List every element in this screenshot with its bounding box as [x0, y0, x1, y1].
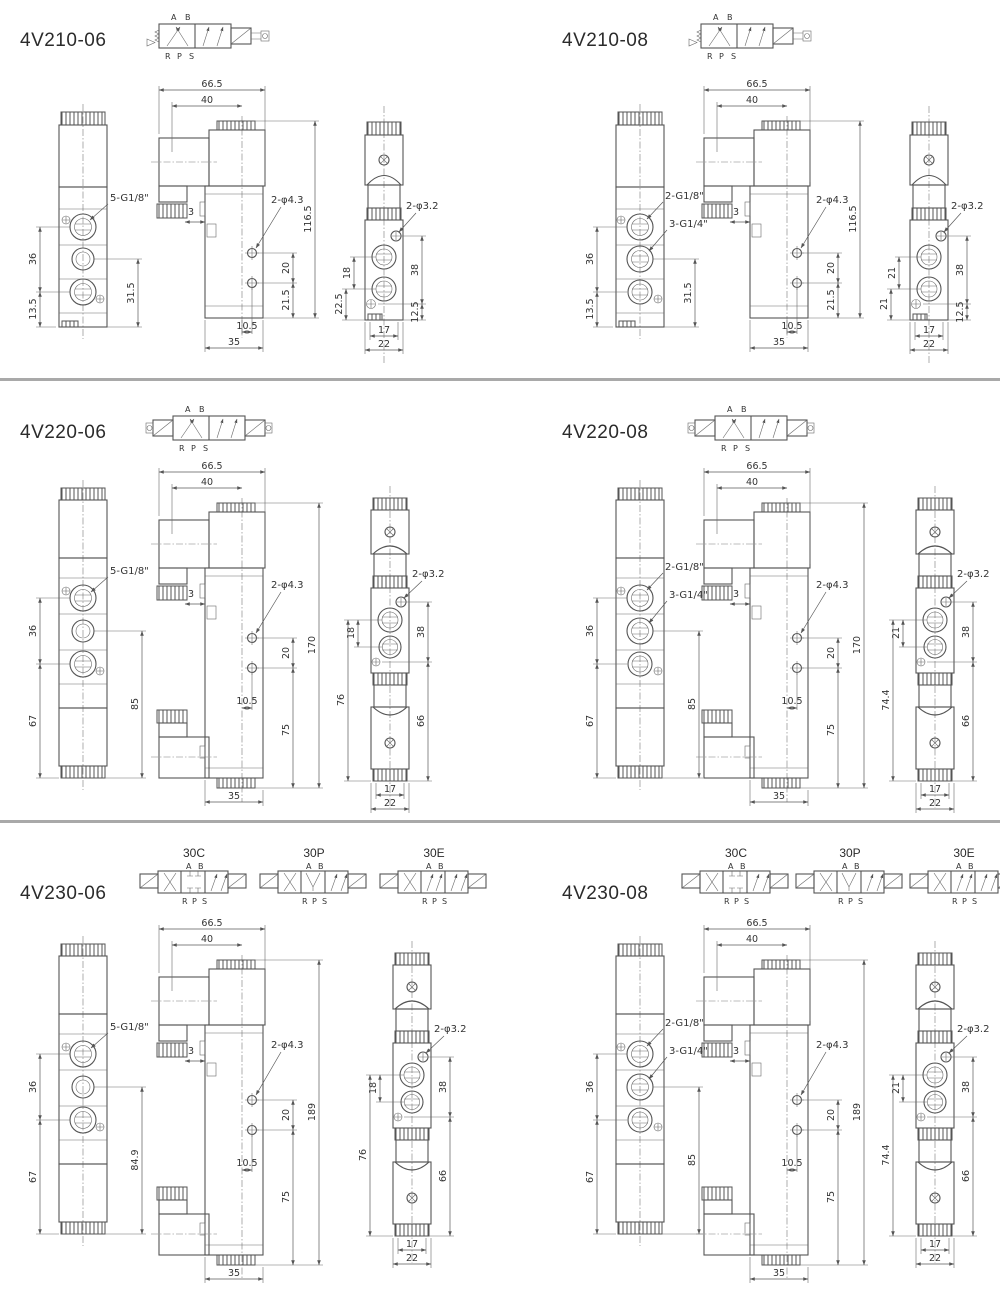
rear-view: 2-φ3.2 21 74.4 38 66 17 22 — [873, 933, 1000, 1273]
section-4v230-08: 4V230-08 30C A B R P S 30P A B R P S — [552, 835, 1000, 1300]
valve-outline — [696, 955, 810, 1279]
valve-outline — [59, 480, 107, 790]
port-s-label: S — [972, 897, 977, 906]
port-r-label: R — [707, 52, 713, 61]
hole-size-label: 2-φ4.3 — [271, 195, 303, 206]
port-p-label: P — [312, 897, 317, 906]
dim-38: 38 — [961, 1081, 972, 1093]
port-s-label: S — [202, 897, 207, 906]
model-title: 4V220-06 — [20, 422, 106, 444]
dim-67: 67 — [585, 715, 596, 727]
dim-170: 170 — [307, 636, 318, 654]
model-title: 4V210-06 — [20, 30, 106, 52]
port-a-label: A — [728, 862, 734, 871]
dim-35: 35 — [228, 1268, 240, 1279]
dim-40: 40 — [746, 934, 758, 945]
port-b-label: B — [318, 862, 324, 871]
catalog-drawing-page: 4V210-06 A B R P S — [0, 0, 1000, 1304]
dim-17: 17 — [929, 784, 941, 795]
variant-label: 30P — [303, 846, 324, 860]
valve-symbol: A B R P S — [145, 402, 285, 456]
hole-size-label: 2-φ4.3 — [816, 1040, 848, 1051]
hole-size-label: 2-φ4.3 — [816, 195, 848, 206]
dimensions: 5-G1/8" 36 67 84.9 — [28, 1022, 149, 1234]
dim-22-5: 22.5 — [334, 293, 345, 314]
dimensions: 66.5 40 3 2-φ4.3 189 20 75 10.5 35 — [704, 918, 868, 1283]
dim-10-5: 10.5 — [236, 321, 257, 332]
row-divider-2 — [0, 820, 1000, 823]
valve-symbol-30c: 30C A B R P S — [138, 847, 250, 907]
side-view: 66.5 40 3 2-φ4.3 189 20 75 10.5 35 — [690, 915, 880, 1293]
dim-35: 35 — [773, 791, 785, 802]
port-r-label: R — [952, 897, 958, 906]
dim-38: 38 — [410, 264, 421, 276]
dim-35: 35 — [773, 1268, 785, 1279]
thread-size-label: 5-G1/8" — [110, 566, 149, 577]
dim-21-5: 21.5 — [281, 289, 292, 310]
dim-17: 17 — [923, 325, 935, 336]
dim-36: 36 — [28, 253, 39, 265]
valve-outline — [151, 498, 265, 802]
dim-36: 36 — [585, 253, 596, 265]
dim-66: 66 — [416, 715, 427, 727]
port-b-label: B — [185, 13, 191, 22]
valve-symbol-30c: 30C A B R P S — [680, 847, 792, 907]
dim-40: 40 — [746, 95, 758, 106]
dim-20: 20 — [826, 262, 837, 274]
dimensions: 66.5 40 3 2-φ4.3 170 20 75 10.5 35 — [704, 461, 868, 806]
dim-20: 20 — [281, 647, 292, 659]
port-p-label: P — [962, 897, 967, 906]
port-s-label: S — [858, 897, 863, 906]
dim-17: 17 — [929, 1239, 941, 1250]
valve-outline — [151, 955, 265, 1279]
symbol-body — [380, 871, 486, 893]
section-4v230-06: 4V230-06 30C A B R P S 30P A B R P — [10, 835, 500, 1300]
dim-38: 38 — [438, 1081, 449, 1093]
port-a-label: A — [713, 13, 719, 22]
section-4v220-06: 4V220-06 A B R P S — [10, 392, 490, 820]
row-divider-1 — [0, 378, 1000, 381]
dim-76: 76 — [358, 1149, 369, 1161]
dim-38: 38 — [955, 264, 966, 276]
port-r-label: R — [165, 52, 171, 61]
dim-18: 18 — [368, 1082, 379, 1094]
rear-view: 2-φ3.2 18 22.5 38 12.5 17 22 — [322, 96, 457, 376]
dim-66: 66 — [961, 715, 972, 727]
hole-size-label: 2-φ3.2 — [406, 201, 438, 212]
port-s-label: S — [744, 897, 749, 906]
port-p-label: P — [177, 52, 182, 61]
dim-3: 3 — [188, 207, 194, 218]
rear-view: 2-φ3.2 18 76 38 66 17 22 — [328, 478, 463, 818]
port-a-label: A — [186, 862, 192, 871]
dim-38: 38 — [416, 626, 427, 638]
thread-size-label: 5-G1/8" — [110, 1022, 149, 1033]
dim-75: 75 — [826, 724, 837, 736]
hole-size-label: 2-φ3.2 — [951, 201, 983, 212]
dimensions: 5-G1/8" 36 67 85 — [28, 566, 149, 778]
dimensions: 66.5 40 3 2-φ4.3 170 20 75 10.5 35 — [159, 461, 323, 806]
dim-13-5: 13.5 — [585, 298, 596, 319]
port-a-label: A — [956, 862, 962, 871]
side-view: 66.5 40 3 2-φ4.3 116.5 20 21.5 10.5 35 — [145, 76, 335, 371]
dim-20: 20 — [826, 1109, 837, 1121]
port-b-label: B — [741, 405, 747, 414]
port-p-label: P — [192, 897, 197, 906]
port-s-label: S — [442, 897, 447, 906]
dim-116-5: 116.5 — [303, 205, 314, 232]
port-a-label: A — [426, 862, 432, 871]
valve-outline — [151, 116, 265, 338]
dim-66-5: 66.5 — [201, 918, 222, 929]
dim-66: 66 — [961, 1170, 972, 1182]
dim-22: 22 — [929, 798, 941, 809]
model-title: 4V210-08 — [562, 30, 648, 52]
port-a-label: A — [306, 862, 312, 871]
rear-view: 2-φ3.2 18 76 38 66 17 22 — [350, 933, 485, 1273]
side-view: 66.5 40 3 2-φ4.3 189 20 75 10.5 35 — [145, 915, 335, 1293]
dim-40: 40 — [201, 95, 213, 106]
port-p-label: P — [733, 444, 738, 453]
variant-label: 30P — [839, 846, 860, 860]
dim-84-9: 84.9 — [130, 1149, 141, 1170]
valve-symbol: A B R P S — [687, 402, 827, 456]
hole-size-label: 2-φ4.3 — [271, 580, 303, 591]
dim-18: 18 — [342, 267, 353, 279]
dim-35: 35 — [773, 337, 785, 348]
port-s-label: S — [322, 897, 327, 906]
port-r-label: R — [721, 444, 727, 453]
port-b-label: B — [438, 862, 444, 871]
port-p-label: P — [432, 897, 437, 906]
dim-21-5: 21.5 — [826, 289, 837, 310]
port-p-label: P — [191, 444, 196, 453]
port-r-label: R — [302, 897, 308, 906]
dim-31-5: 31.5 — [126, 282, 137, 303]
dim-18: 18 — [346, 627, 357, 639]
dim-17: 17 — [406, 1239, 418, 1250]
valve-symbol-30e: 30E A B R P S — [908, 847, 1000, 907]
port-b-label: B — [198, 862, 204, 871]
valve-outline — [616, 104, 664, 339]
dim-10-5: 10.5 — [781, 321, 802, 332]
dim-66-5: 66.5 — [746, 918, 767, 929]
port-a-label: A — [171, 13, 177, 22]
dim-35: 35 — [228, 791, 240, 802]
dim-66-5: 66.5 — [746, 79, 767, 90]
dim-85: 85 — [130, 698, 141, 710]
section-4v210-06: 4V210-06 A B R P S — [10, 8, 490, 373]
port-r-label: R — [422, 897, 428, 906]
port-r-label: R — [838, 897, 844, 906]
dim-10-5: 10.5 — [236, 1158, 257, 1169]
hole-size-label: 2-φ4.3 — [816, 580, 848, 591]
symbol-body — [796, 871, 902, 893]
symbol-body — [910, 871, 1000, 893]
valve-outline — [59, 104, 107, 339]
port-s-label: S — [189, 52, 194, 61]
dim-3: 3 — [733, 207, 739, 218]
dimensions: 66.5 40 3 2-φ4.3 189 20 75 10.5 35 — [159, 918, 323, 1283]
side-view: 66.5 40 3 2-φ4.3 116.5 20 21.5 10.5 35 — [690, 76, 880, 371]
hole-size-label: 2-φ3.2 — [957, 569, 989, 580]
port-b-label: B — [968, 862, 974, 871]
port-a-label: A — [185, 405, 191, 414]
side-view: 66.5 40 3 2-φ4.3 170 20 75 10.5 35 — [145, 458, 335, 813]
port-p-label: P — [848, 897, 853, 906]
port-s-label: S — [745, 444, 750, 453]
dim-20: 20 — [826, 647, 837, 659]
dim-10-5: 10.5 — [781, 1158, 802, 1169]
model-title: 4V230-08 — [562, 883, 648, 905]
hole-size-label: 2-φ3.2 — [434, 1024, 466, 1035]
dim-22: 22 — [378, 339, 390, 350]
rear-view: 2-φ3.2 21 74.4 38 66 17 22 — [873, 478, 1000, 818]
symbol-body — [147, 24, 269, 48]
section-4v220-08: 4V220-08 A B R P S — [552, 392, 1000, 820]
symbol-body — [146, 416, 272, 440]
valve-symbol-30p: 30P A B R P S — [794, 847, 906, 907]
model-title: 4V230-06 — [20, 883, 106, 905]
valve-symbol-30e: 30E A B R P S — [378, 847, 490, 907]
variant-label: 30C — [725, 846, 747, 860]
dim-17: 17 — [384, 784, 396, 795]
valve-symbol: A B R P S — [135, 10, 275, 64]
dim-22: 22 — [384, 798, 396, 809]
dim-12-5: 12.5 — [410, 301, 421, 322]
port-r-label: R — [724, 897, 730, 906]
dim-12-5: 12.5 — [955, 301, 966, 322]
valve-outline — [59, 936, 107, 1246]
hole-size-label: 2-φ3.2 — [957, 1024, 989, 1035]
dim-22: 22 — [406, 1253, 418, 1264]
port-p-label: P — [719, 52, 724, 61]
hole-size-label: 2-φ3.2 — [412, 569, 444, 580]
valve-symbol: A B R P S — [677, 10, 817, 64]
dim-76: 76 — [336, 694, 347, 706]
symbol-body — [682, 871, 788, 893]
thread-size-label: 5-G1/8" — [110, 193, 149, 204]
dim-66: 66 — [438, 1170, 449, 1182]
dim-22: 22 — [929, 1253, 941, 1264]
symbol-body — [688, 416, 814, 440]
port-b-label: B — [740, 862, 746, 871]
port-s-label: S — [731, 52, 736, 61]
dim-189: 189 — [307, 1103, 318, 1121]
port-b-label: B — [199, 405, 205, 414]
port-b-label: B — [727, 13, 733, 22]
hole-size-label: 2-φ4.3 — [271, 1040, 303, 1051]
dim-75: 75 — [826, 1191, 837, 1203]
port-a-label: A — [842, 862, 848, 871]
dim-36: 36 — [585, 1081, 596, 1093]
dim-66-5: 66.5 — [201, 79, 222, 90]
dim-10-5: 10.5 — [781, 696, 802, 707]
dim-40: 40 — [746, 477, 758, 488]
dim-66-5: 66.5 — [201, 461, 222, 472]
dim-22: 22 — [923, 339, 935, 350]
dim-75: 75 — [281, 724, 292, 736]
symbol-body — [140, 871, 246, 893]
dim-189: 189 — [852, 1103, 863, 1121]
dim-3: 3 — [188, 1046, 194, 1057]
dim-21a: 21 — [887, 267, 898, 279]
dim-74-4: 74.4 — [881, 1144, 892, 1165]
model-title: 4V220-08 — [562, 422, 648, 444]
dim-75: 75 — [281, 1191, 292, 1203]
dim-36: 36 — [585, 625, 596, 637]
symbol-body — [689, 24, 811, 48]
dim-3: 3 — [188, 589, 194, 600]
dim-20: 20 — [281, 1109, 292, 1121]
dim-38: 38 — [961, 626, 972, 638]
dim-40: 40 — [201, 477, 213, 488]
port-b-label: B — [854, 862, 860, 871]
dim-36: 36 — [28, 625, 39, 637]
dim-74-4: 74.4 — [881, 689, 892, 710]
port-p-label: P — [734, 897, 739, 906]
port-a-label: A — [727, 405, 733, 414]
variant-label: 30C — [183, 846, 205, 860]
dim-21b: 21 — [879, 298, 890, 310]
dim-17: 17 — [378, 325, 390, 336]
rear-view: 2-φ3.2 21 21 38 12.5 17 22 — [867, 96, 1000, 376]
dim-13-5: 13.5 — [28, 298, 39, 319]
dim-116-5: 116.5 — [848, 205, 859, 232]
valve-symbol-30p: 30P A B R P S — [258, 847, 370, 907]
valve-outline — [616, 936, 664, 1246]
dim-67: 67 — [585, 1171, 596, 1183]
section-4v210-08: 4V210-08 A B R P S — [552, 8, 1000, 373]
valve-outline — [696, 116, 810, 338]
dimensions: 5-G1/8" 36 13.5 31.5 — [28, 193, 149, 327]
valve-outline — [696, 498, 810, 802]
side-view: 66.5 40 3 2-φ4.3 170 20 75 10.5 35 — [690, 458, 880, 813]
dim-170: 170 — [852, 636, 863, 654]
dim-36: 36 — [28, 1081, 39, 1093]
dim-67: 67 — [28, 1171, 39, 1183]
dim-40: 40 — [201, 934, 213, 945]
variant-label: 30E — [423, 846, 444, 860]
variant-label: 30E — [953, 846, 974, 860]
dim-35: 35 — [228, 337, 240, 348]
dim-3: 3 — [733, 589, 739, 600]
port-s-label: S — [203, 444, 208, 453]
port-r-label: R — [179, 444, 185, 453]
dim-20: 20 — [281, 262, 292, 274]
dim-67: 67 — [28, 715, 39, 727]
dim-10-5: 10.5 — [236, 696, 257, 707]
symbol-body — [260, 871, 366, 893]
port-r-label: R — [182, 897, 188, 906]
dim-66-5: 66.5 — [746, 461, 767, 472]
valve-outline — [616, 480, 664, 790]
dim-3: 3 — [733, 1046, 739, 1057]
